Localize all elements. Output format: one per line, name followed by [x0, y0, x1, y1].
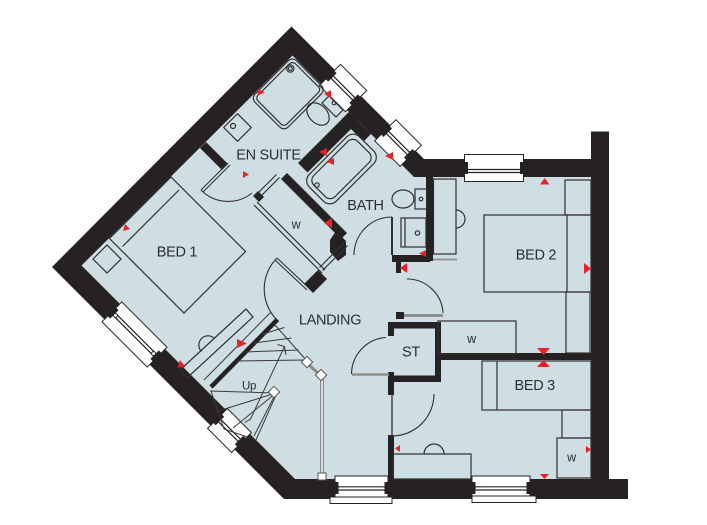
svg-text:EN SUITE: EN SUITE	[236, 148, 301, 164]
svg-text:ST: ST	[402, 344, 420, 360]
svg-text:BATH: BATH	[347, 198, 383, 214]
svg-text:BED 2: BED 2	[516, 248, 557, 264]
svg-text:LANDING: LANDING	[299, 312, 361, 328]
svg-text:BED 3: BED 3	[514, 378, 555, 394]
svg-text:w: w	[466, 332, 477, 346]
svg-text:Up: Up	[242, 381, 256, 393]
svg-text:BED 1: BED 1	[157, 244, 198, 260]
svg-text:w: w	[291, 218, 302, 232]
svg-text:w: w	[566, 450, 577, 464]
